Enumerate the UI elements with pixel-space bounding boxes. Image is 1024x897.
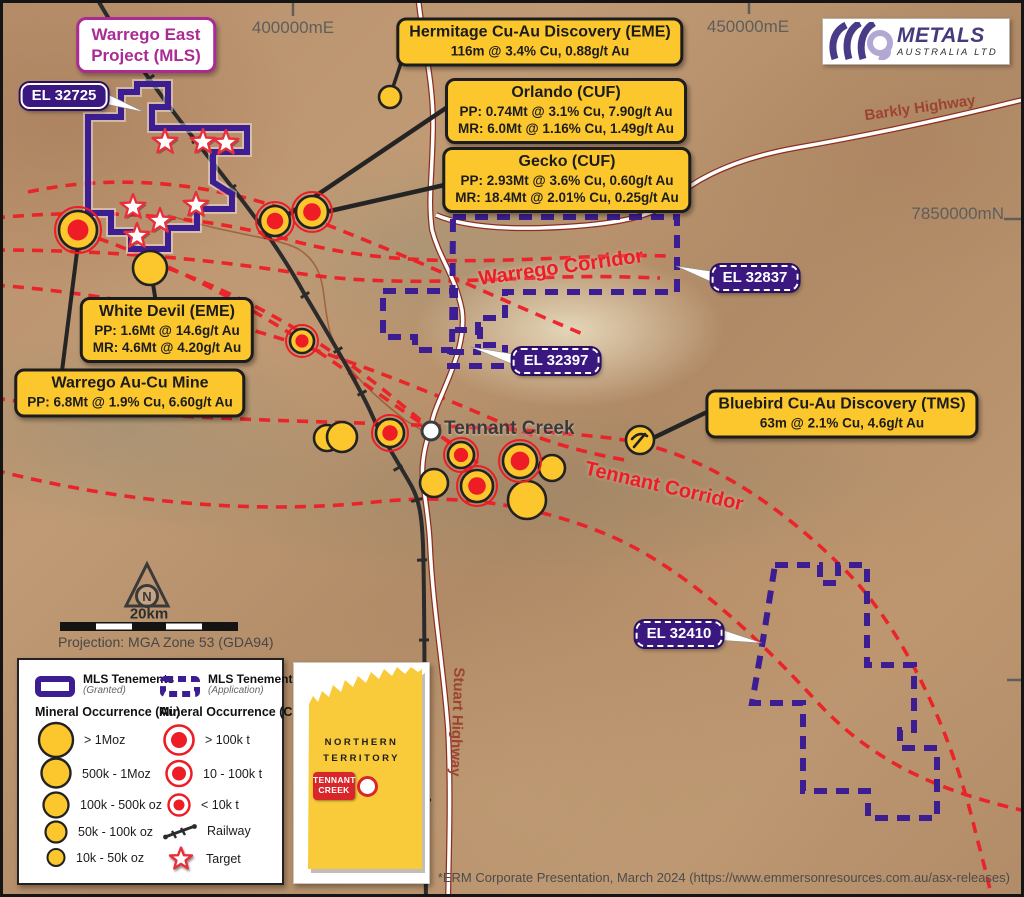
legend-au-row: > 1Moz — [37, 721, 125, 759]
cu-au-occurrence-marker — [55, 207, 101, 253]
tenement-el32397 — [383, 291, 505, 366]
legend-cu-header: Mineral Occurrence (Cu) — [159, 705, 304, 719]
leader-bluebird — [651, 413, 705, 439]
legend-cu-row: 10 - 100k t — [164, 759, 262, 788]
railway-icon — [162, 821, 198, 841]
au-occurrence-marker — [327, 422, 357, 452]
source-attribution: *ERM Corporate Presentation, March 2024 … — [438, 870, 1010, 885]
grid-label-450000mE: 450000mE — [707, 17, 789, 37]
callout-orlando: Orlando (CUF) PP: 0.74Mt @ 3.1% Cu, 7.90… — [445, 78, 687, 144]
town-marker — [422, 422, 440, 440]
logo-company-sub: AUSTRALIA LTD — [897, 47, 998, 58]
legend-au-row: 10k - 50k oz — [45, 848, 144, 867]
callout-hermitage: Hermitage Cu-Au Discovery (EME) 116m @ 3… — [396, 18, 683, 67]
grid-label-7850000mN: 7850000mN — [911, 204, 1004, 224]
tenement-el32410 — [752, 565, 937, 818]
inset-tennant-creek-label: TENNANT CREEK — [313, 772, 355, 800]
map-legend: MLS Tenements (Granted) MLS Tenements (A… — [17, 658, 284, 885]
tenement-label-el32397: EL 32397 — [513, 348, 600, 374]
leader-warrego-mine — [62, 236, 79, 371]
au-occurrence-marker — [420, 469, 448, 497]
cu-au-occurrence-marker — [256, 202, 294, 240]
wedge-el32410 — [717, 628, 762, 643]
tenement-label-el32725: EL 32725 — [21, 83, 108, 109]
legend-au-row: 50k - 100k oz — [43, 820, 153, 844]
discovery-hammer-marker — [626, 426, 654, 454]
callout-white-devil: White Devil (EME) PP: 1.6Mt @ 14.6g/t Au… — [80, 297, 254, 363]
northern-territory-inset-map: NORTHERN TERRITORY TENNANT CREEK — [293, 662, 430, 884]
cu-au-occurrence-marker — [286, 325, 318, 357]
target-star-icon — [163, 844, 197, 874]
legend-cu-row: > 100k t — [162, 723, 250, 757]
cu-au-occurrence-marker — [292, 192, 332, 232]
north-letter: N — [142, 589, 151, 604]
callout-warrego-mine: Warrego Au-Cu Mine PP: 6.8Mt @ 1.9% Cu, … — [14, 369, 245, 418]
tenement-application-outlines — [383, 217, 937, 818]
cu-au-occurrence-marker — [499, 440, 541, 482]
cu-au-occurrence-marker — [457, 466, 497, 506]
au-occurrence-marker — [133, 251, 167, 285]
tenement-label-el32410: EL 32410 — [636, 621, 723, 647]
map-canvas: N 400000mE 450000mE 7850000mN Warrego Ea… — [0, 0, 1024, 897]
logo-mark-icon — [823, 22, 895, 62]
au-occurrence-marker — [539, 455, 565, 481]
project-label-warrego-east: Warrego East Project (MLS) — [76, 17, 216, 73]
town-label-tennant-creek: Tennant Creek — [444, 418, 575, 440]
au-occurrence-marker — [379, 86, 401, 108]
tenement-label-el32837: EL 32837 — [712, 265, 799, 291]
north-arrow: N — [126, 564, 168, 607]
application-tenement-icon — [158, 674, 202, 698]
grid-label-400000mE: 400000mE — [252, 18, 334, 38]
legend-au-row: 500k - 1Moz — [39, 757, 151, 790]
wedge-el32837 — [676, 266, 716, 284]
legend-railway-row: Railway — [162, 821, 251, 841]
projection-note: Projection: MGA Zone 53 (GDA94) — [58, 634, 274, 650]
metals-australia-logo: METALS AUSTRALIA LTD — [822, 18, 1010, 65]
scale-distance-label: 20km — [130, 606, 168, 623]
legend-tenement-granted: MLS Tenements (Granted) — [33, 674, 174, 698]
callout-bluebird: Bluebird Cu-Au Discovery (TMS) 63m @ 2.1… — [705, 390, 978, 439]
logo-company-name: METALS — [897, 25, 985, 47]
au-occurrence-marker — [508, 481, 546, 519]
inset-label-territory: TERRITORY — [294, 753, 429, 764]
callout-gecko: Gecko (CUF) PP: 2.93Mt @ 3.6% Cu, 0.60g/… — [442, 147, 691, 213]
inset-label-northern: NORTHERN — [294, 737, 429, 748]
legend-au-row: 100k - 500k oz — [41, 791, 162, 819]
inset-town-marker — [357, 776, 378, 797]
granted-tenement-icon — [33, 674, 77, 698]
legend-tenement-application: MLS Tenements (Application) — [158, 674, 299, 698]
scale-bar — [60, 622, 238, 631]
cu-au-occurrence-marker — [372, 415, 408, 451]
legend-target-row: Target — [163, 844, 241, 874]
legend-cu-row: < 10k t — [166, 792, 239, 818]
